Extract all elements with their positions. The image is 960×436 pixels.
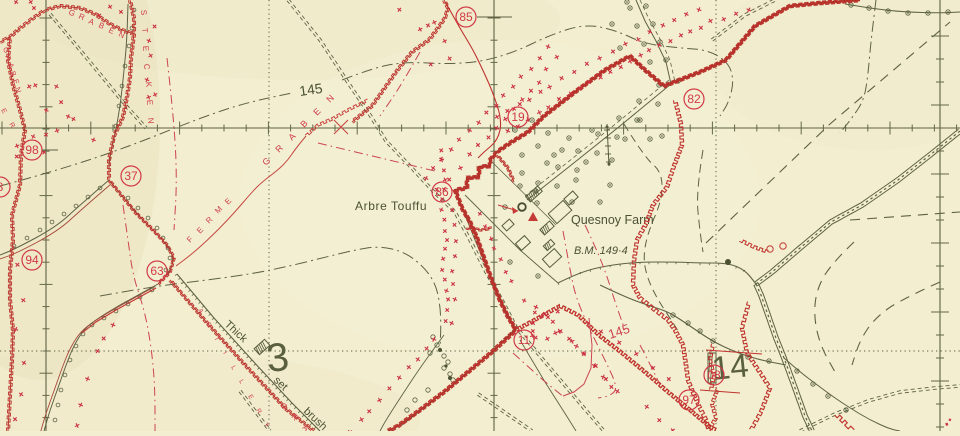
svg-text:Quesnoy Farm: Quesnoy Farm: [571, 213, 654, 227]
svg-text:8: 8: [0, 180, 4, 194]
svg-text:E: E: [145, 100, 154, 106]
svg-text:98: 98: [25, 143, 39, 157]
svg-text:3: 3: [264, 335, 291, 381]
svg-text:Arbre Touffu: Arbre Touffu: [355, 199, 427, 213]
svg-text:S: S: [139, 10, 148, 16]
svg-text:11: 11: [518, 333, 531, 347]
svg-text:N: N: [146, 118, 155, 125]
svg-text:C: C: [142, 64, 151, 71]
svg-text:37: 37: [124, 169, 138, 183]
svg-text:63: 63: [150, 264, 164, 278]
svg-text:97: 97: [682, 393, 696, 407]
svg-text:85: 85: [459, 10, 473, 24]
svg-text:86: 86: [435, 185, 449, 199]
svg-text:94: 94: [25, 253, 39, 267]
svg-text:T: T: [140, 28, 149, 34]
svg-text:B.M. 149·4: B.M. 149·4: [574, 245, 628, 257]
svg-text:E: E: [141, 46, 150, 52]
svg-text:82: 82: [687, 92, 701, 106]
svg-text:145: 145: [298, 80, 324, 99]
svg-text:19: 19: [511, 110, 525, 124]
svg-text:08: 08: [707, 368, 721, 382]
